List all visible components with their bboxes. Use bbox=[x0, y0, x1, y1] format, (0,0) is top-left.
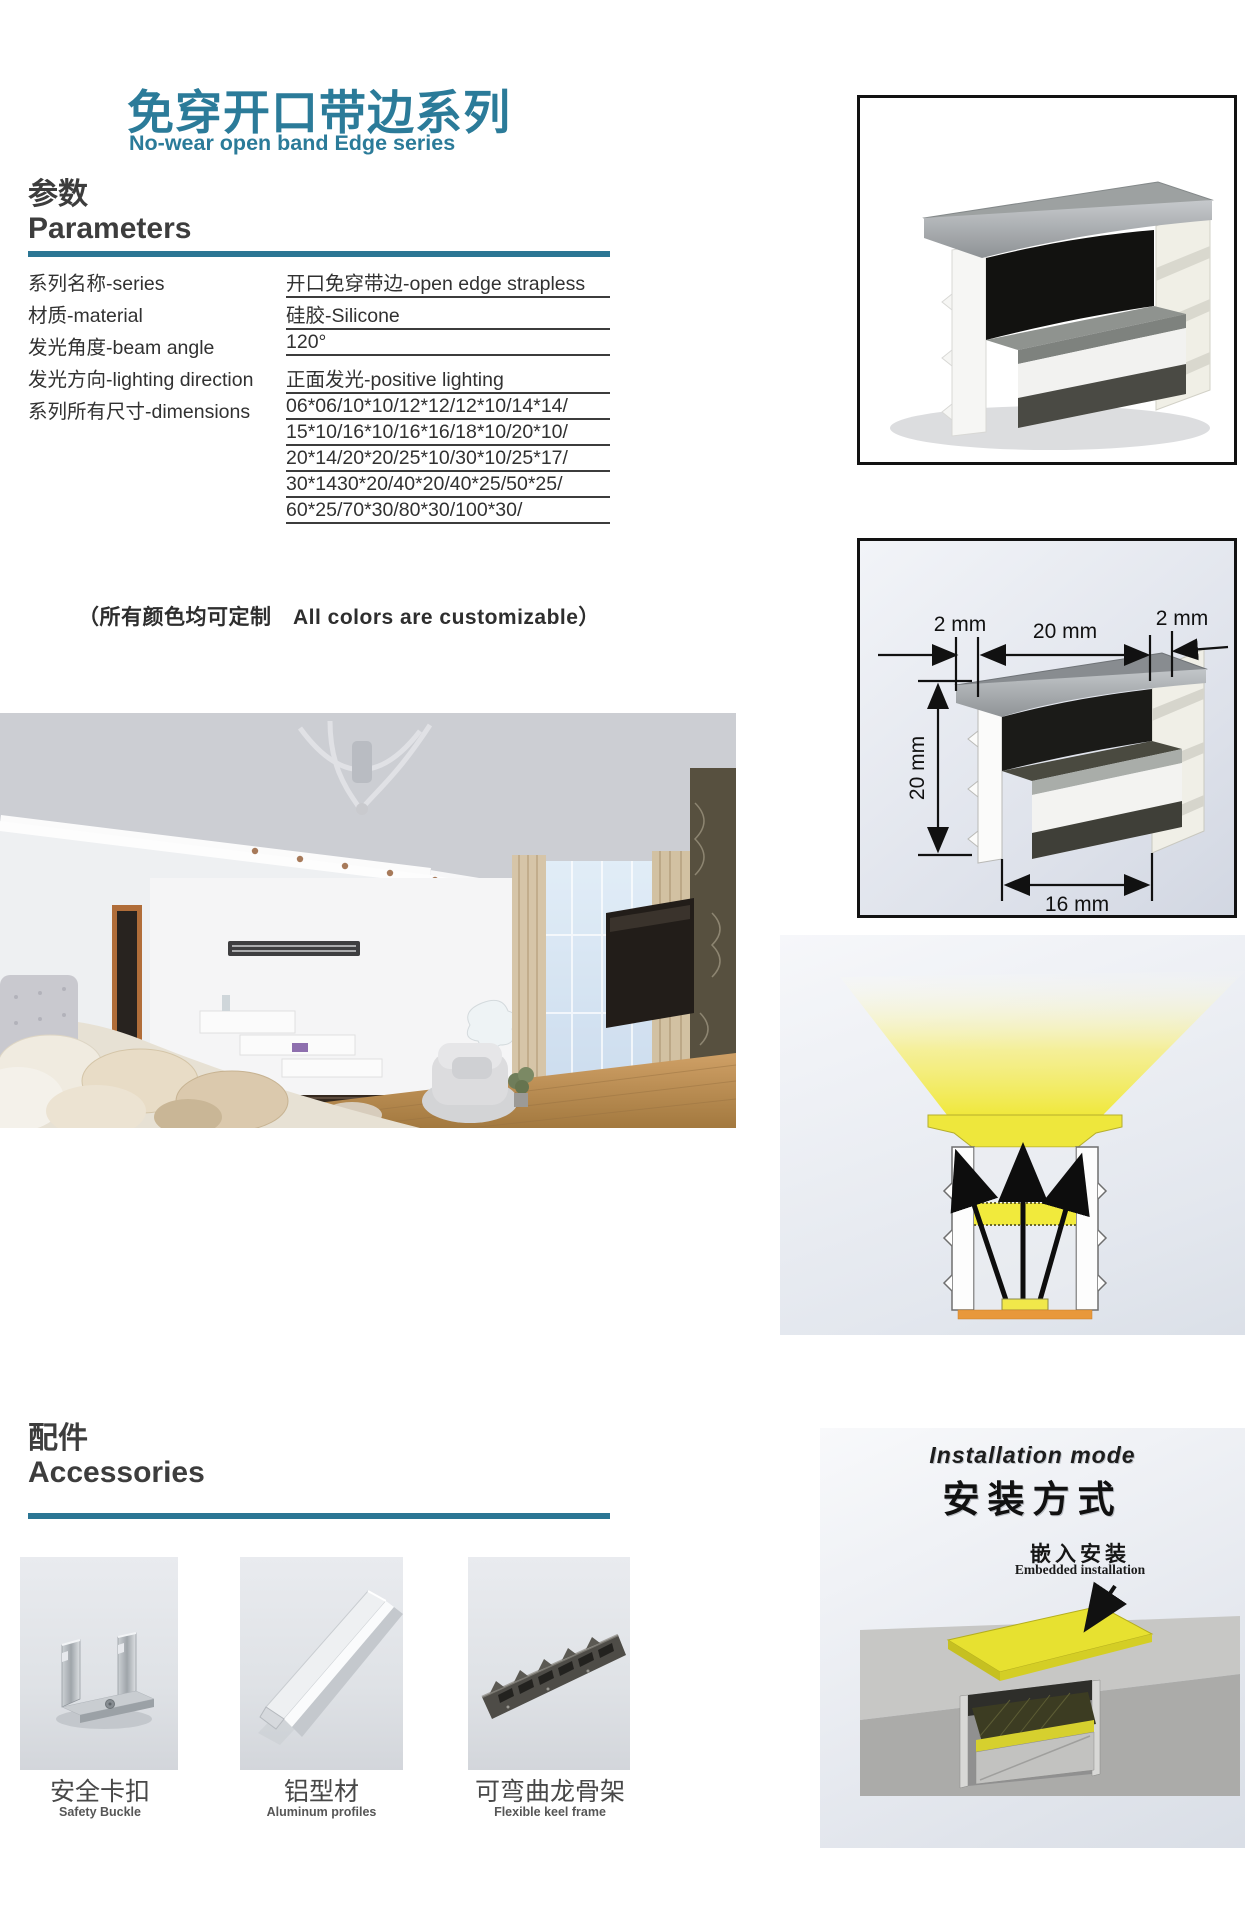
parameters-table: 系列名称-series 开口免穿带边-open edge strapless 材… bbox=[28, 266, 610, 524]
parameters-divider bbox=[28, 251, 610, 257]
aluminum-profile-icon bbox=[240, 1557, 403, 1770]
aluminum-profile-photo bbox=[240, 1557, 403, 1770]
accessory-name: 安全卡扣 bbox=[20, 1772, 180, 1808]
param-label: 发光角度-beam angle bbox=[28, 330, 286, 362]
embedded-installation-label-en: Embedded installation bbox=[950, 1562, 1210, 1578]
accessory-name-en: Flexible keel frame bbox=[455, 1805, 645, 1819]
parameters-heading-en: Parameters bbox=[28, 212, 191, 246]
led-chip bbox=[1002, 1299, 1048, 1310]
dimension-diagram-panel: 2 mm 20 mm 2 mm 20 mm 16 mm bbox=[857, 538, 1237, 918]
product-3d-render-panel bbox=[857, 95, 1237, 465]
param-value: 硅胶-Silicone bbox=[286, 298, 610, 330]
table-row-dimensions: 系列所有尺寸-dimensions 06*06/10*10/12*12/12*1… bbox=[28, 394, 610, 524]
catalog-page: 免穿开口带边系列 No-wear open band Edge series 参… bbox=[0, 0, 1251, 1915]
dimension-line: 06*06/10*10/12*12/12*10/14*14/ bbox=[286, 394, 610, 420]
product-3d-render bbox=[860, 98, 1234, 462]
table-row: 材质-material 硅胶-Silicone bbox=[28, 298, 610, 330]
light-cone bbox=[840, 971, 1245, 1115]
installation-panel: Installation mode 安装方式 嵌入安装 Embedded ins… bbox=[820, 1428, 1245, 1848]
safety-buckle-icon bbox=[20, 1557, 178, 1770]
application-photo bbox=[0, 713, 736, 1128]
dim-top-right-label: 2 mm bbox=[1156, 607, 1209, 630]
accessories-heading-en: Accessories bbox=[28, 1456, 205, 1490]
parameters-heading-cn: 参数 bbox=[28, 178, 88, 212]
dim-top-center-label: 20 mm bbox=[1033, 620, 1097, 643]
dim-top-left-label: 2 mm bbox=[934, 613, 987, 636]
dimension-diagram: 2 mm 20 mm 2 mm 20 mm 16 mm bbox=[860, 541, 1234, 915]
lighting-diagram-panel bbox=[780, 935, 1245, 1335]
dimension-line: 30*1430*20/40*20/40*25/50*25/ bbox=[286, 472, 610, 498]
param-label: 系列名称-series bbox=[28, 266, 286, 298]
table-row: 发光方向-lighting direction 正面发光-positive li… bbox=[28, 362, 610, 394]
profile-left-wall bbox=[952, 244, 986, 436]
dim-side-label: 20 mm bbox=[906, 736, 929, 800]
safety-buckle-photo bbox=[20, 1557, 178, 1770]
param-label: 发光方向-lighting direction bbox=[28, 362, 286, 394]
param-value: 开口免穿带边-open edge strapless bbox=[286, 266, 610, 298]
accessories-heading-cn: 配件 bbox=[28, 1422, 88, 1456]
accessory-name: 可弯曲龙骨架 bbox=[455, 1772, 645, 1808]
installation-heading-en: Installation mode bbox=[820, 1442, 1245, 1469]
table-row: 系列名称-series 开口免穿带边-open edge strapless bbox=[28, 266, 610, 298]
embedded-installation-diagram bbox=[860, 1578, 1240, 1848]
param-label: 系列所有尺寸-dimensions bbox=[28, 394, 286, 426]
page-subtitle: No-wear open band Edge series bbox=[129, 131, 455, 156]
dim-bottom-label: 16 mm bbox=[1045, 893, 1109, 915]
accessory-name: 铝型材 bbox=[240, 1772, 403, 1808]
accessory-name-en: Safety Buckle bbox=[20, 1805, 180, 1819]
dimension-line: 20*14/20*20/25*10/30*10/25*17/ bbox=[286, 446, 610, 472]
param-value: 120° bbox=[286, 330, 610, 356]
flexible-keel-photo bbox=[468, 1557, 630, 1770]
table-row: 发光角度-beam angle 120° bbox=[28, 330, 610, 362]
dimension-line: 15*10/16*10/16*16/18*10/20*10/ bbox=[286, 420, 610, 446]
dimension-line: 60*25/70*30/80*30/100*30/ bbox=[286, 498, 610, 524]
param-label: 材质-material bbox=[28, 298, 286, 330]
flexible-keel-icon bbox=[468, 1557, 630, 1770]
bedroom-scene bbox=[0, 713, 736, 1128]
ac-vent bbox=[228, 941, 360, 956]
pcb-strip bbox=[958, 1310, 1092, 1319]
customization-note: （所有颜色均可定制 All colors are customizable） bbox=[78, 601, 600, 631]
param-value: 正面发光-positive lighting bbox=[286, 362, 610, 394]
installation-heading-cn: 安装方式 bbox=[820, 1469, 1245, 1523]
dimension-values: 06*06/10*10/12*12/12*10/14*14/ 15*10/16*… bbox=[286, 394, 610, 524]
profile-top-cap bbox=[928, 1115, 1122, 1147]
accessory-name-en: Aluminum profiles bbox=[240, 1805, 403, 1819]
lighting-diagram bbox=[780, 935, 1245, 1335]
accessories-divider bbox=[28, 1513, 610, 1519]
